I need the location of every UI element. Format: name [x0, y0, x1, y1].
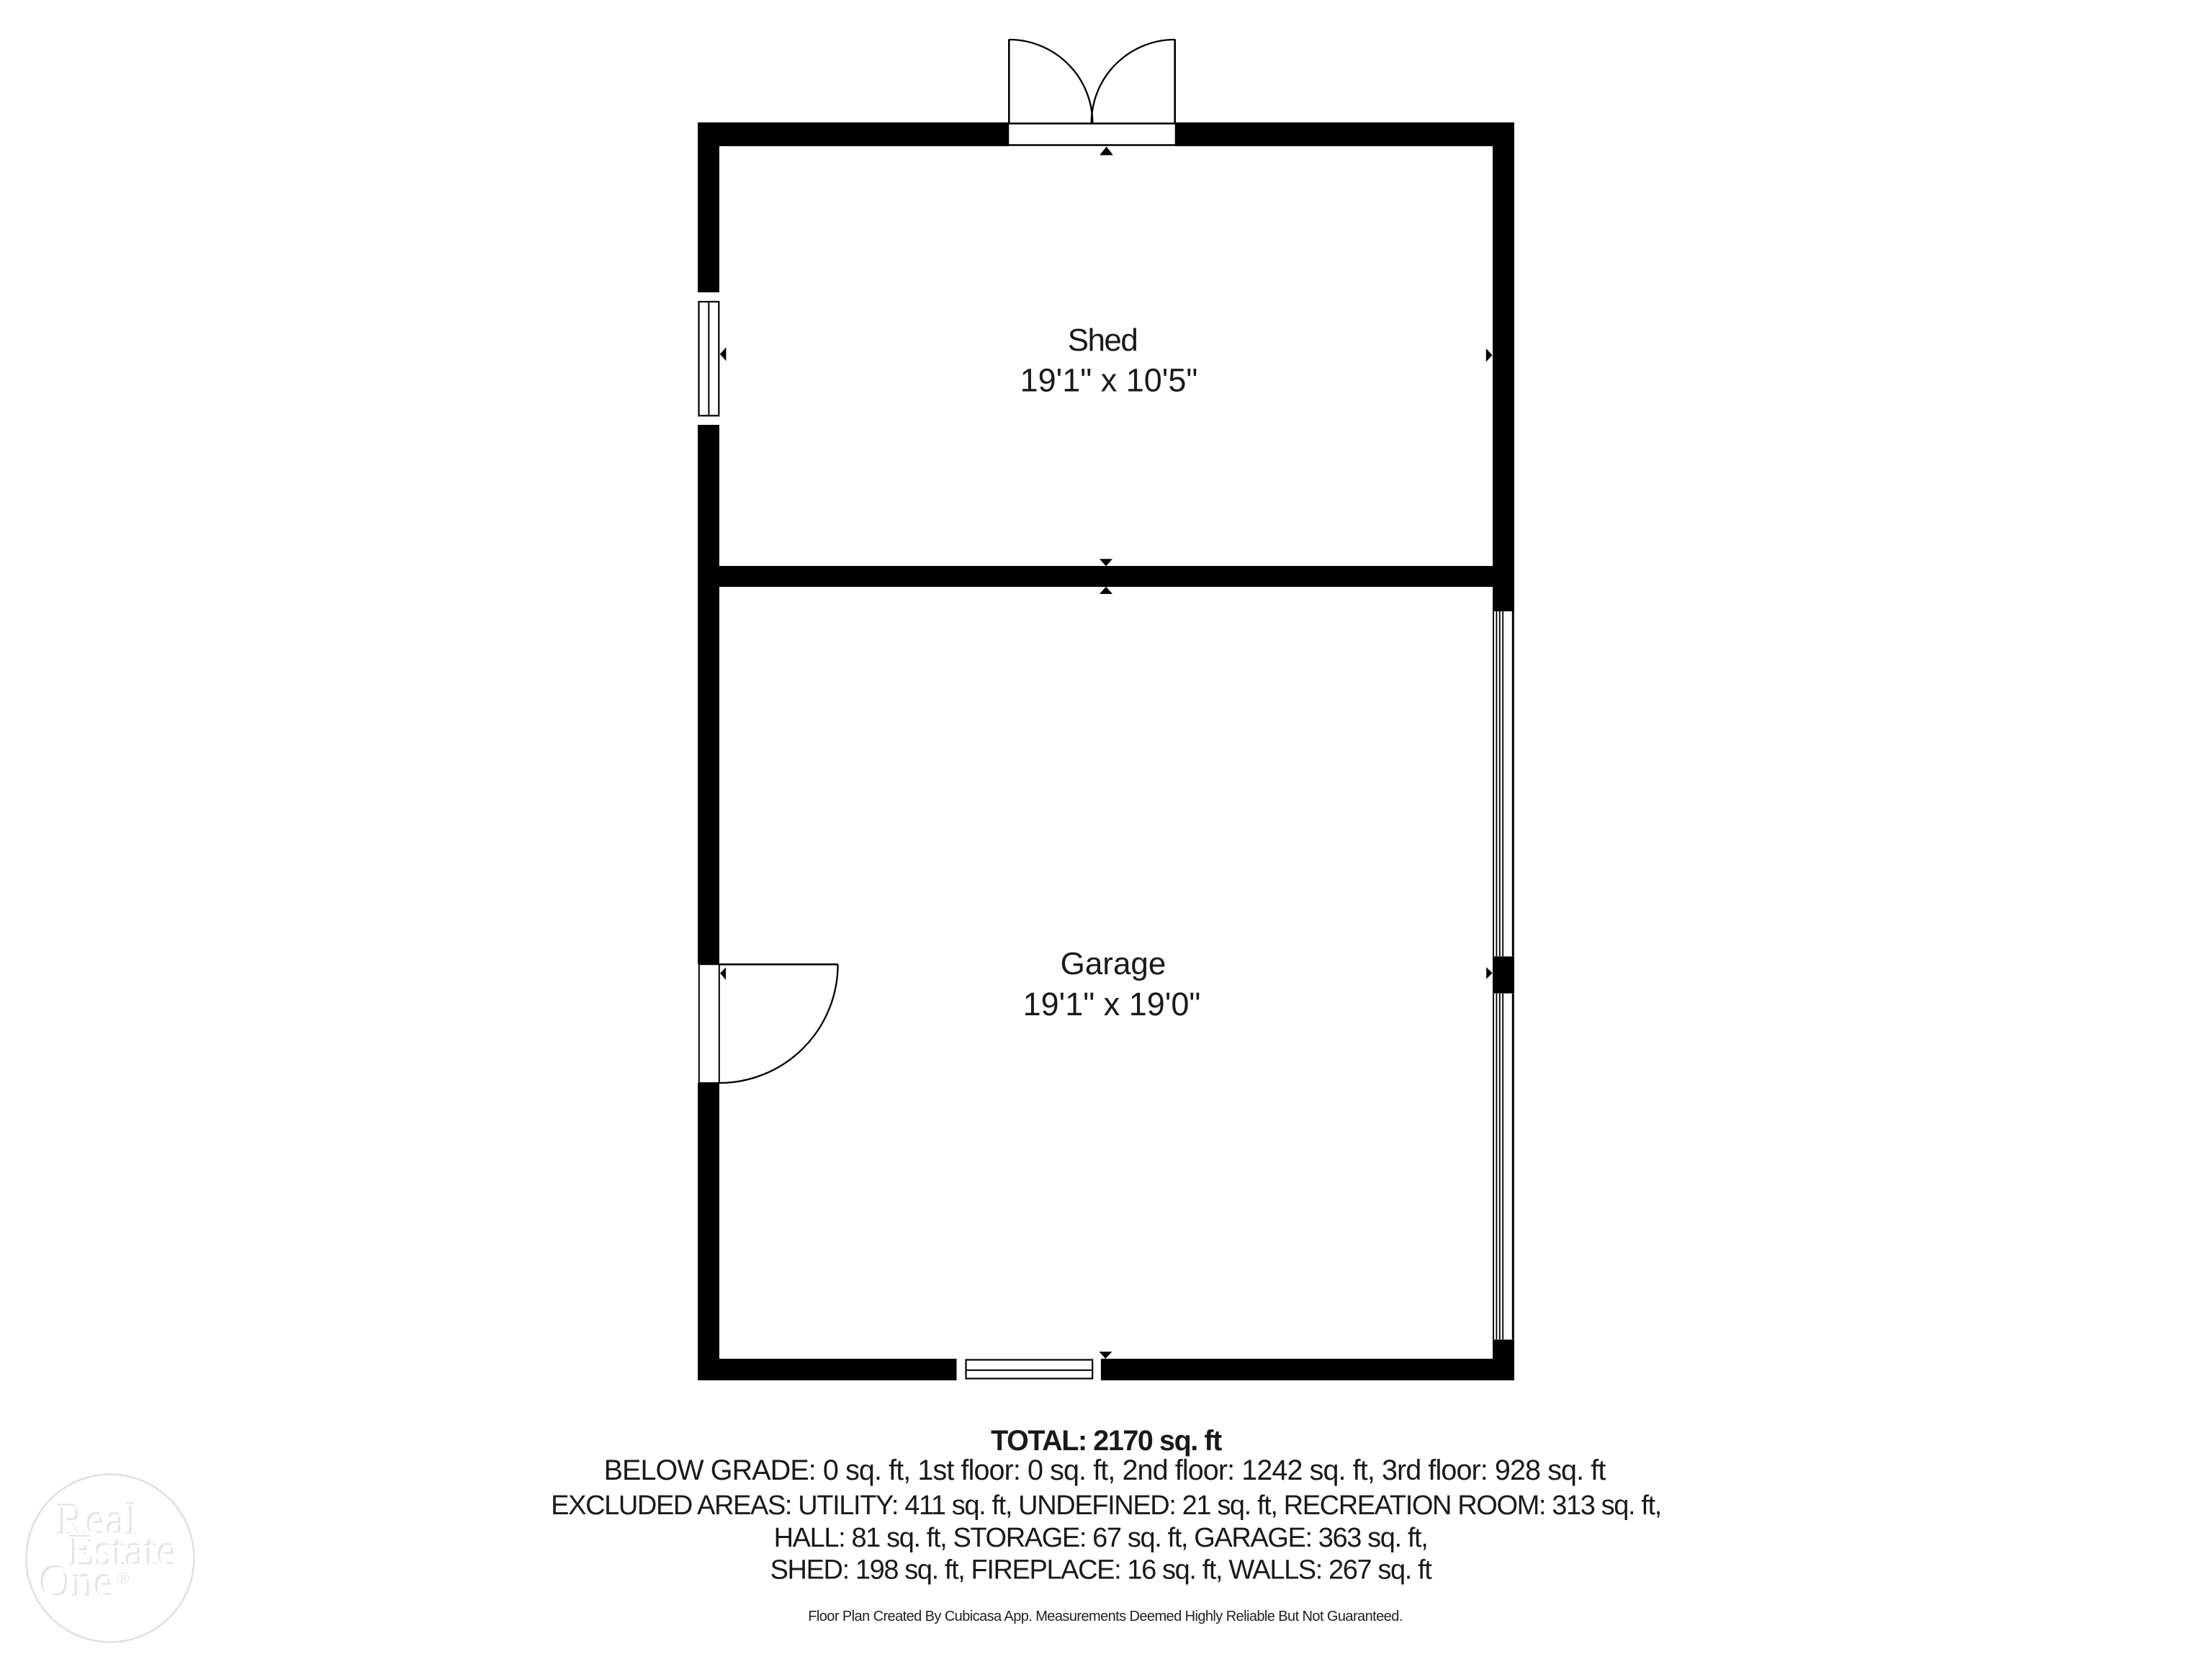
- svg-text:19'1" x 19'0": 19'1" x 19'0": [1023, 986, 1201, 1022]
- svg-text:Floor Plan Created By Cubicasa: Floor Plan Created By Cubicasa App. Meas…: [808, 1609, 1402, 1624]
- svg-text:TOTAL: 2170 sq. ft: TOTAL: 2170 sq. ft: [991, 1425, 1222, 1457]
- svg-text:19'1" x 10'5": 19'1" x 10'5": [1020, 362, 1198, 399]
- svg-text:HALL: 81 sq. ft, STORAGE: 67 s: HALL: 81 sq. ft, STORAGE: 67 sq. ft, GAR…: [774, 1523, 1428, 1553]
- svg-text:Shed: Shed: [1068, 323, 1138, 358]
- svg-text:BELOW GRADE: 0 sq. ft, 1st flo: BELOW GRADE: 0 sq. ft, 1st floor: 0 sq. …: [604, 1455, 1606, 1486]
- svg-text:EXCLUDED AREAS: UTILITY: 411 s: EXCLUDED AREAS: UTILITY: 411 sq. ft, UND…: [551, 1491, 1661, 1521]
- svg-text:One: One: [41, 1558, 115, 1607]
- svg-text:SHED: 198 sq. ft, FIREPLACE: 1: SHED: 198 sq. ft, FIREPLACE: 16 sq. ft, …: [770, 1555, 1433, 1586]
- svg-text:Garage: Garage: [1061, 946, 1166, 981]
- svg-text:®: ®: [117, 1570, 130, 1588]
